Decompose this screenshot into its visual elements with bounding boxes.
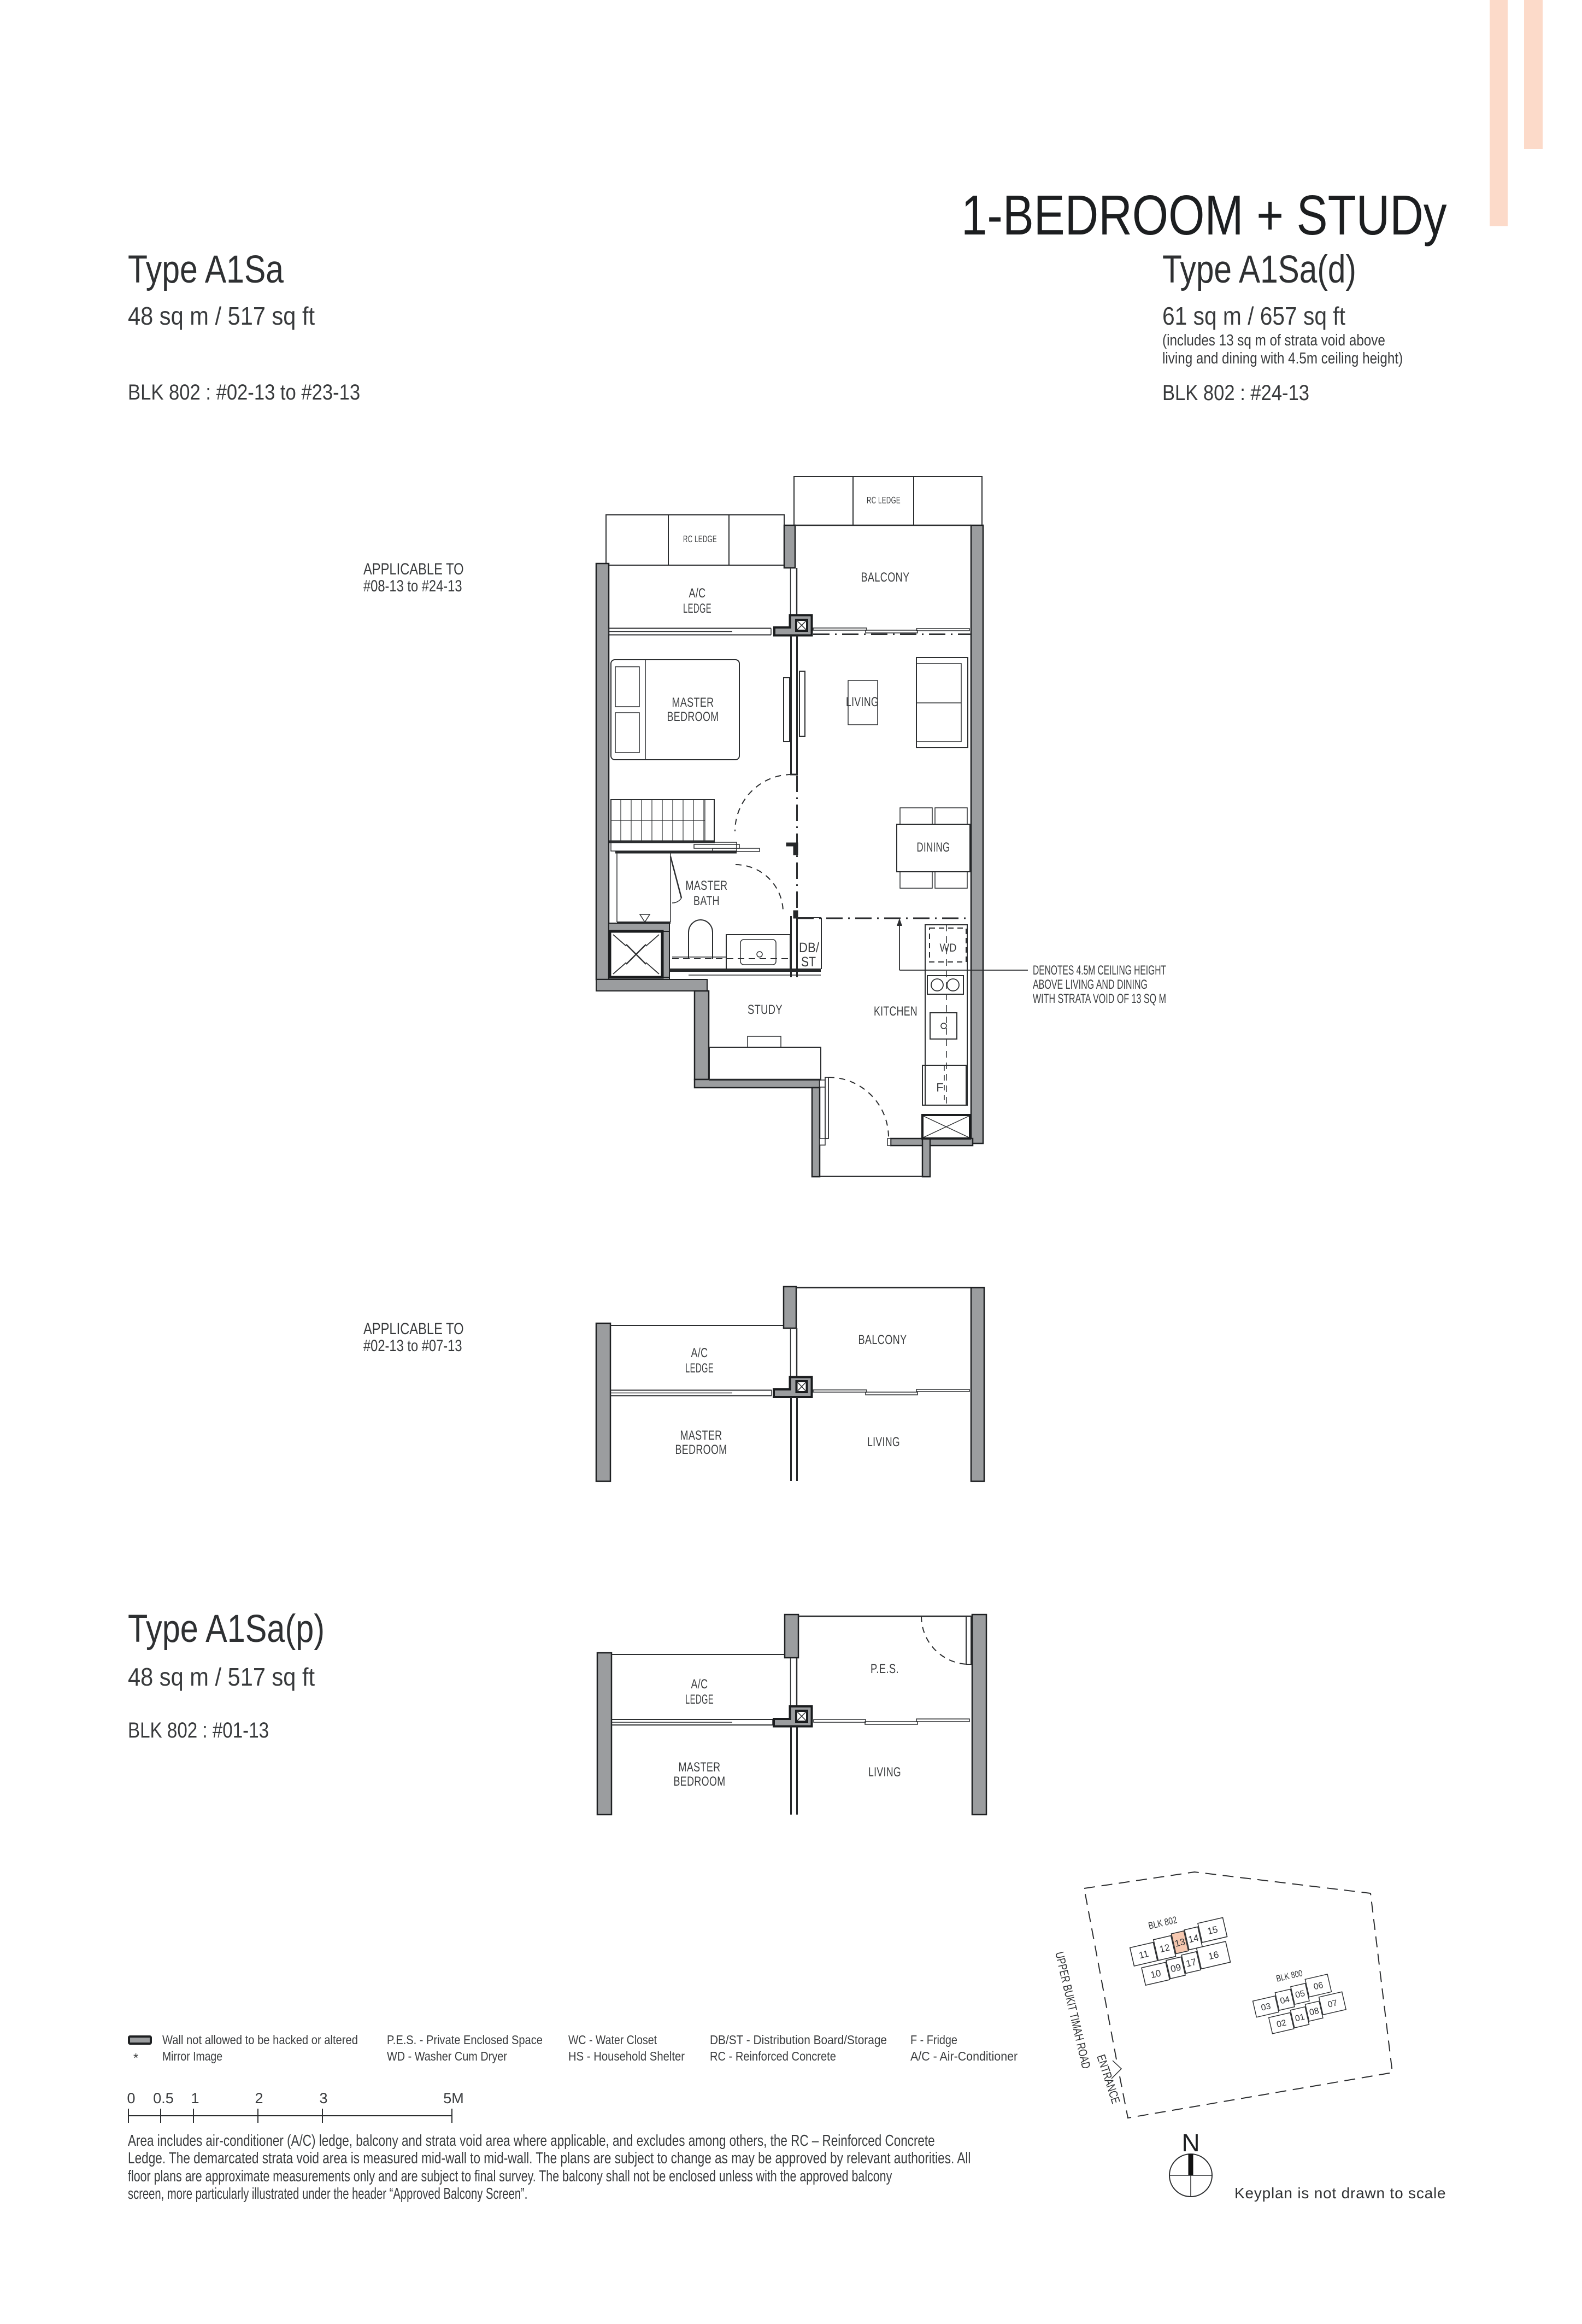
- svg-text:DB/: DB/: [799, 940, 819, 955]
- svg-text:A/C: A/C: [689, 586, 706, 601]
- svg-text:BATH: BATH: [693, 894, 720, 908]
- svg-text:LIVING: LIVING: [868, 1765, 901, 1780]
- svg-text:ENTRANCE: ENTRANCE: [1094, 2053, 1123, 2105]
- svg-text:MASTER: MASTER: [679, 1760, 721, 1775]
- svg-text:N: N: [1181, 2128, 1199, 2157]
- svg-text:ST: ST: [801, 954, 816, 970]
- svg-text:MASTER: MASTER: [672, 695, 714, 710]
- svg-text:ABOVE LIVING AND DINING: ABOVE LIVING AND DINING: [1033, 977, 1148, 992]
- svg-text:P.E.S.: P.E.S.: [871, 1662, 899, 1676]
- svg-text:A/C: A/C: [691, 1346, 708, 1360]
- svg-text:LEDGE: LEDGE: [685, 1692, 714, 1707]
- svg-text:MASTER: MASTER: [686, 878, 728, 893]
- svg-text:WD: WD: [940, 942, 957, 954]
- svg-text:KITCHEN: KITCHEN: [874, 1004, 918, 1019]
- svg-text:MASTER: MASTER: [680, 1428, 722, 1443]
- svg-text:LEDGE: LEDGE: [685, 1361, 714, 1376]
- svg-text:0: 0: [127, 2090, 135, 2106]
- svg-text:2: 2: [255, 2090, 263, 2106]
- svg-text:LIVING: LIVING: [846, 695, 879, 709]
- svg-text:A/C: A/C: [691, 1677, 708, 1692]
- svg-text:5M: 5M: [443, 2090, 464, 2106]
- svg-text:BEDROOM: BEDROOM: [675, 1442, 727, 1457]
- svg-text:BALCONY: BALCONY: [858, 1333, 907, 1347]
- svg-text:WITH STRATA VOID OF 13 SQ M: WITH STRATA VOID OF 13 SQ M: [1033, 991, 1166, 1006]
- svg-text:0.5: 0.5: [153, 2090, 174, 2106]
- svg-text:RC LEDGE: RC LEDGE: [683, 533, 717, 544]
- svg-text:BALCONY: BALCONY: [861, 570, 910, 585]
- svg-text:DENOTES 4.5M CEILING HEIGHT: DENOTES 4.5M CEILING HEIGHT: [1033, 963, 1166, 978]
- svg-text:F: F: [936, 1081, 943, 1094]
- svg-text:BEDROOM: BEDROOM: [667, 709, 719, 724]
- svg-text:RC LEDGE: RC LEDGE: [867, 495, 901, 506]
- svg-text:1: 1: [191, 2090, 199, 2106]
- svg-text:BLK 802: BLK 802: [1147, 1914, 1178, 1932]
- svg-text:LEDGE: LEDGE: [683, 601, 711, 616]
- svg-text:LIVING: LIVING: [867, 1435, 900, 1449]
- svg-text:DINING: DINING: [917, 840, 950, 855]
- svg-text:3: 3: [319, 2090, 327, 2106]
- svg-text:BLK 800: BLK 800: [1275, 1968, 1303, 1983]
- svg-text:BEDROOM: BEDROOM: [674, 1774, 726, 1789]
- svg-text:UPPER BUKIT TIMAH ROAD: UPPER BUKIT TIMAH ROAD: [1052, 1950, 1093, 2070]
- svg-text:STUDY: STUDY: [748, 1002, 783, 1017]
